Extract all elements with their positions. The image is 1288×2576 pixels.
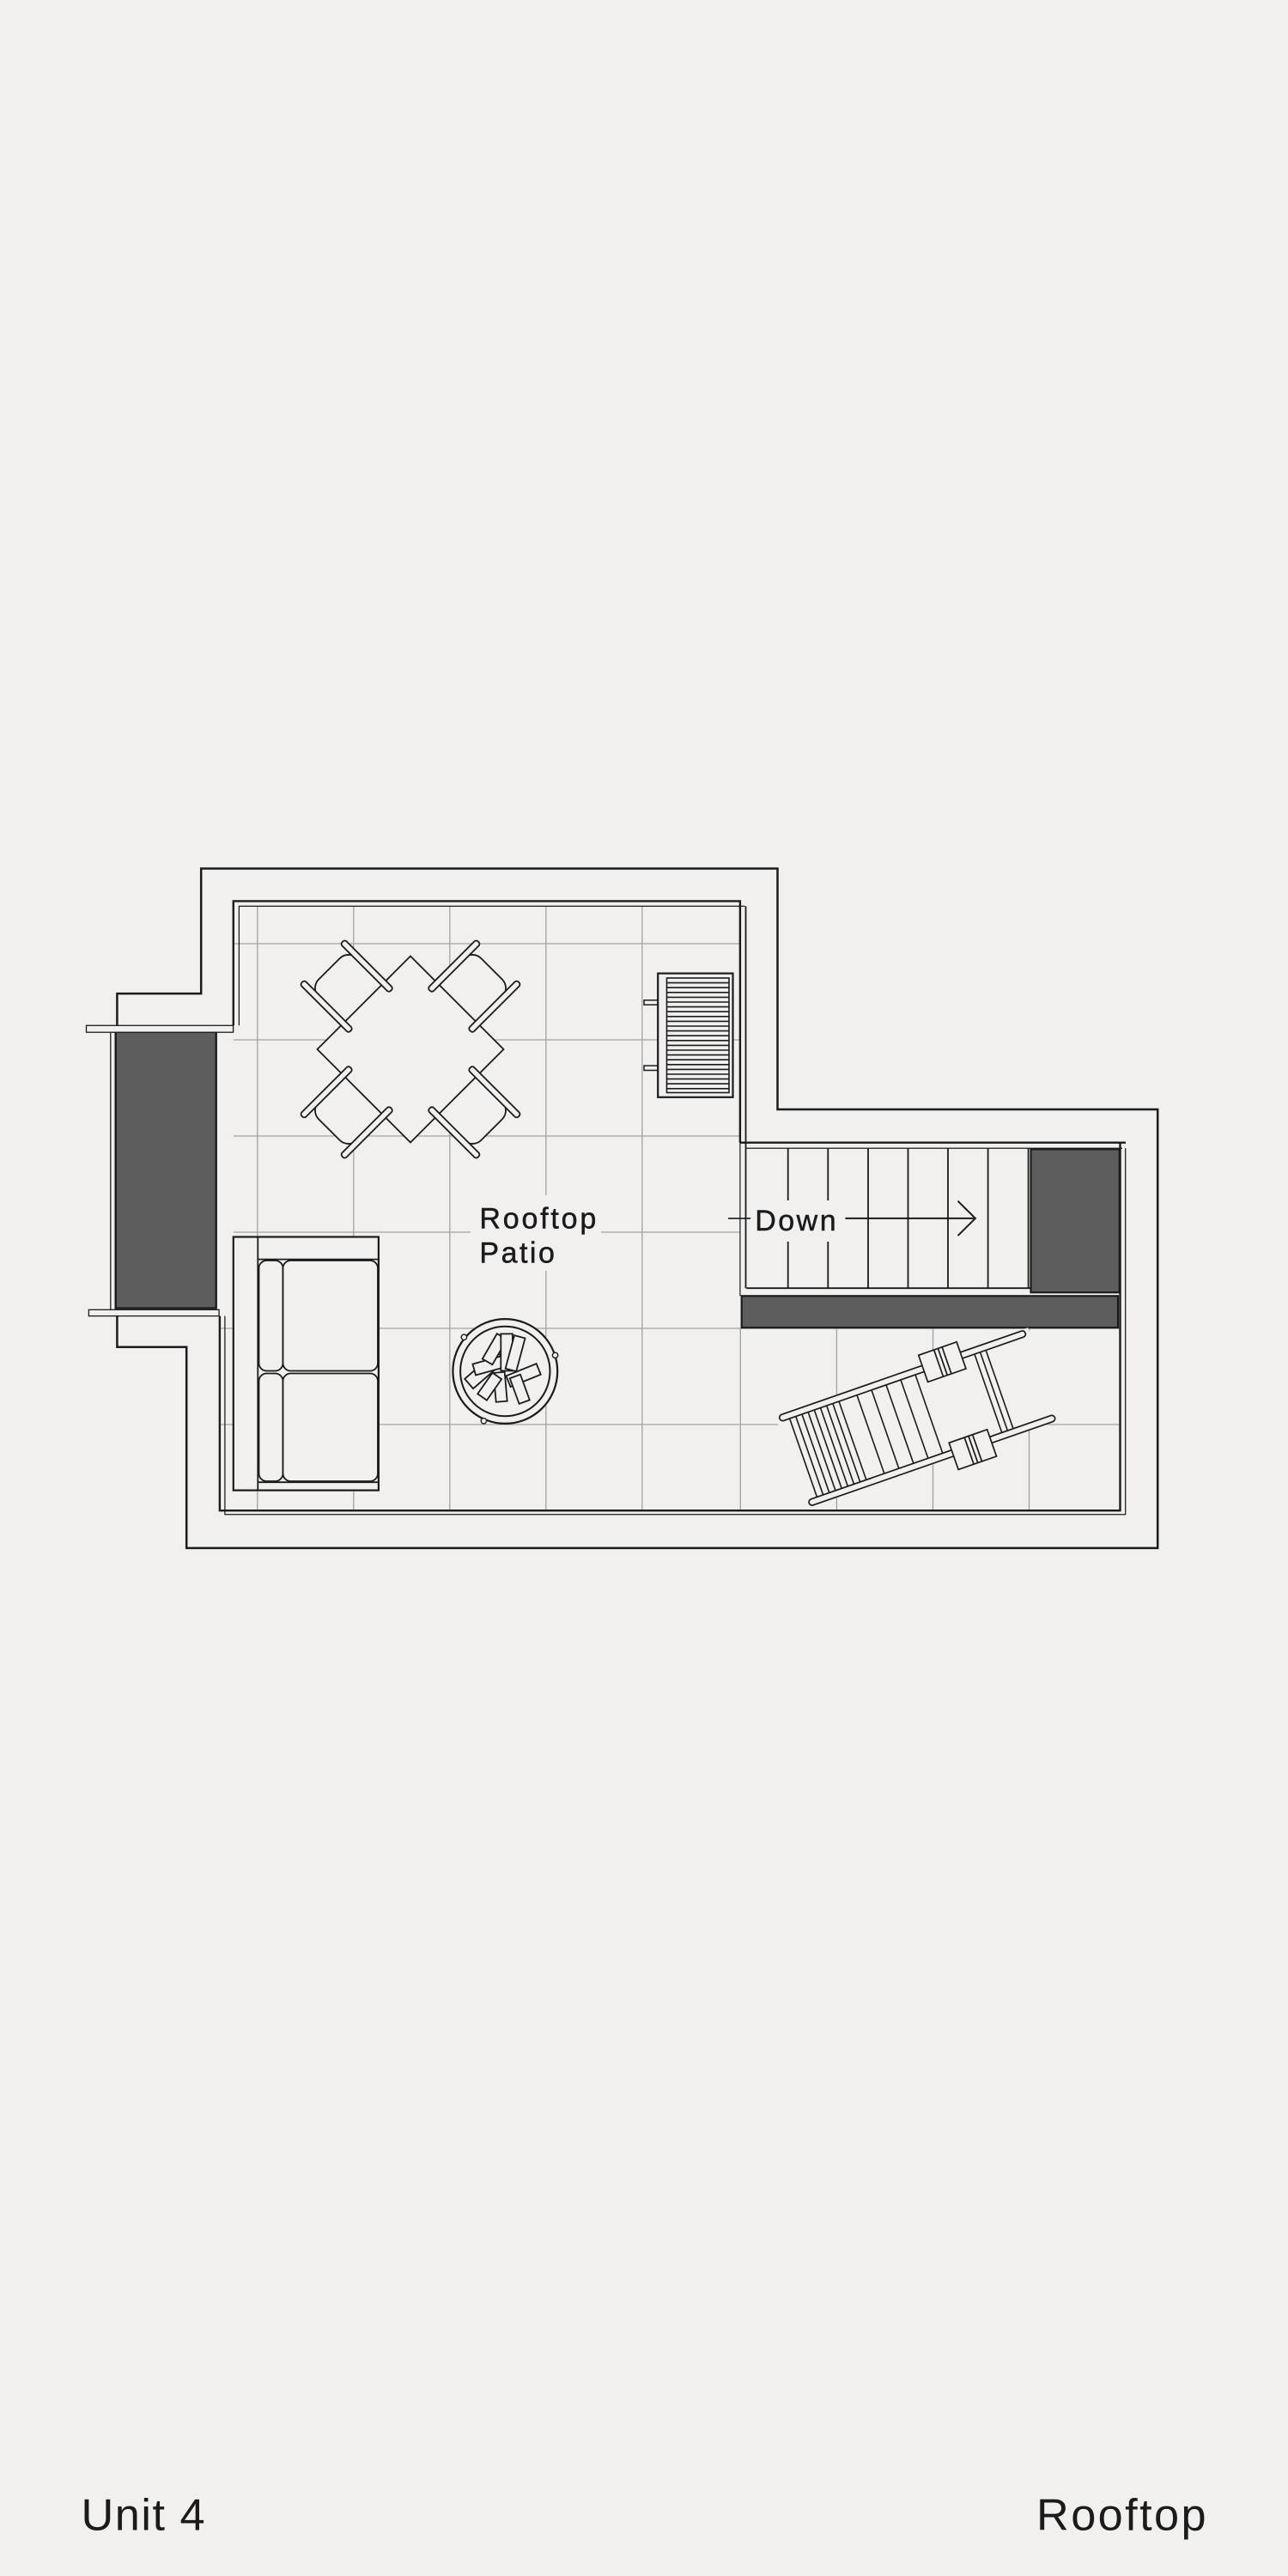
svg-text:Rooftop: Rooftop bbox=[1036, 2491, 1208, 2541]
svg-text:Unit 4: Unit 4 bbox=[82, 2491, 207, 2541]
svg-text:Patio: Patio bbox=[479, 1236, 556, 1269]
svg-text:Down: Down bbox=[755, 1205, 838, 1237]
svg-text:Rooftop: Rooftop bbox=[479, 1203, 598, 1236]
